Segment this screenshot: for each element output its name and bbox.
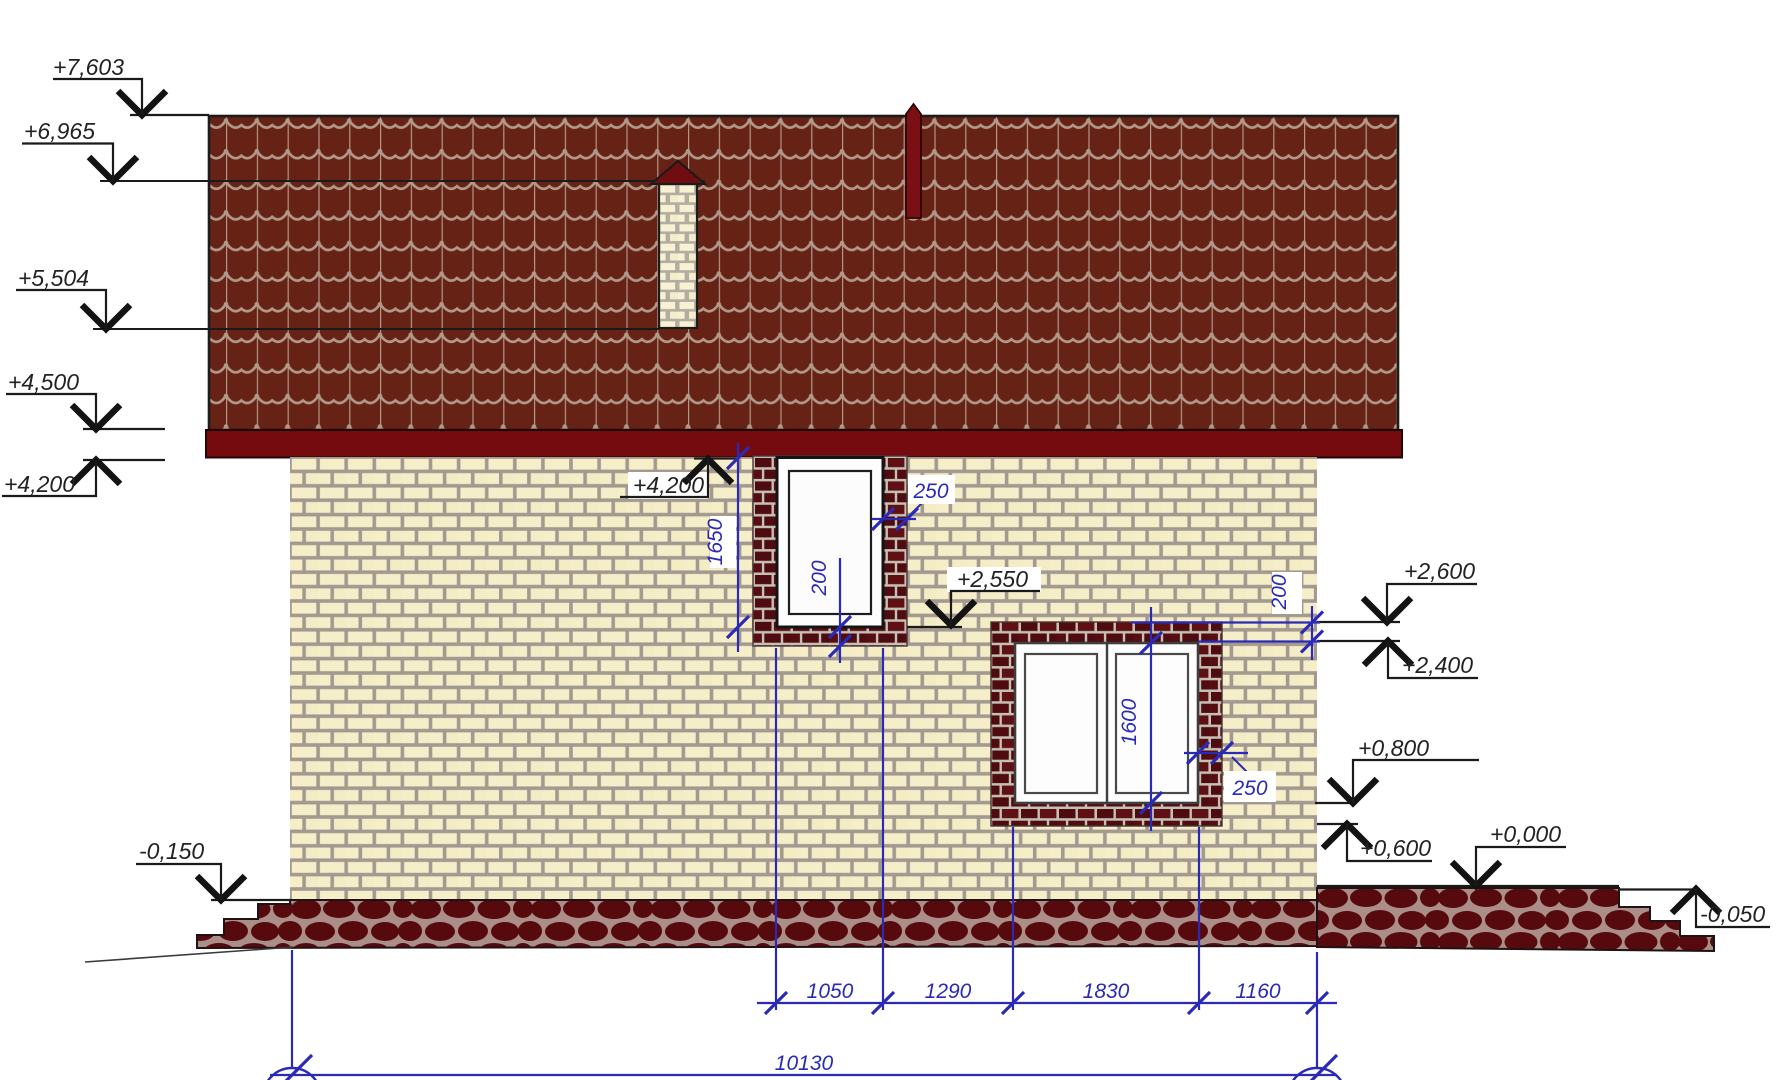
svg-text:+0,000: +0,000 (1490, 821, 1561, 847)
svg-text:+4,200: +4,200 (633, 472, 704, 498)
svg-text:-0,150: -0,150 (139, 838, 204, 864)
svg-text:-0,050: -0,050 (1700, 901, 1765, 927)
svg-text:250: 250 (1231, 777, 1267, 800)
svg-text:1050: 1050 (807, 980, 854, 1003)
svg-text:+2,600: +2,600 (1404, 558, 1475, 584)
svg-text:+0,800: +0,800 (1358, 735, 1429, 761)
svg-text:+0,600: +0,600 (1360, 835, 1431, 861)
svg-text:1160: 1160 (1235, 980, 1280, 1003)
svg-text:+4,200: +4,200 (4, 471, 75, 497)
svg-text:200: 200 (1268, 574, 1291, 610)
svg-text:+4,500: +4,500 (8, 369, 79, 395)
svg-text:1290: 1290 (925, 980, 972, 1003)
svg-text:1830: 1830 (1083, 980, 1130, 1003)
svg-text:10130: 10130 (775, 1052, 834, 1075)
svg-text:250: 250 (912, 480, 948, 503)
svg-text:1650: 1650 (704, 518, 727, 565)
svg-text:+2,550: +2,550 (957, 566, 1028, 592)
svg-text:+7,603: +7,603 (53, 54, 124, 80)
svg-text:200: 200 (808, 560, 831, 596)
svg-text:+2,400: +2,400 (1402, 652, 1473, 678)
svg-text:1600: 1600 (1118, 698, 1141, 745)
svg-text:+5,504: +5,504 (18, 265, 89, 291)
svg-text:+6,965: +6,965 (24, 118, 95, 144)
